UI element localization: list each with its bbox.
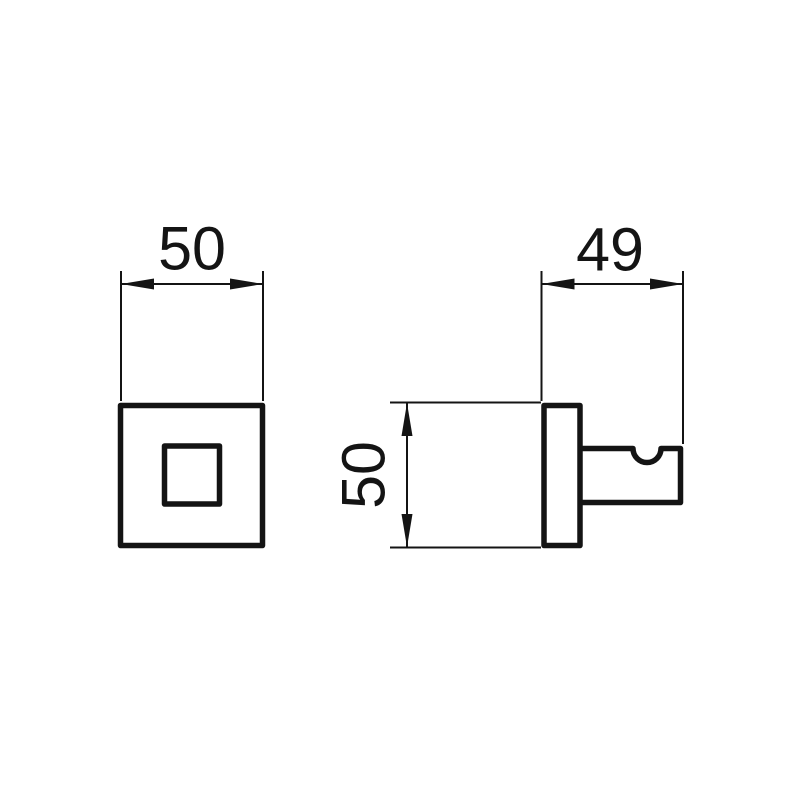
drawing-canvas: 50 49 50 — [0, 0, 800, 800]
arrowhead-left — [542, 279, 575, 290]
side-view — [544, 406, 681, 546]
side-view-hook-arm — [582, 449, 681, 503]
side-height-dimension — [390, 403, 541, 548]
front-view-outline — [121, 406, 263, 546]
front-width-dimension — [121, 271, 263, 401]
front-view — [121, 406, 263, 546]
front-view-center-square — [165, 446, 220, 504]
front-width-label: 50 — [158, 219, 226, 280]
side-depth-label: 49 — [576, 220, 644, 281]
arrowhead-left — [121, 279, 154, 290]
arrowhead-right — [650, 279, 683, 290]
side-height-label: 50 — [334, 441, 395, 509]
side-view-mounting-plate — [544, 406, 580, 546]
side-depth-dimension — [542, 271, 684, 444]
arrowhead-up — [402, 403, 413, 436]
technical-drawing — [0, 0, 800, 800]
arrowhead-right — [230, 279, 263, 290]
arrowhead-down — [402, 514, 413, 547]
